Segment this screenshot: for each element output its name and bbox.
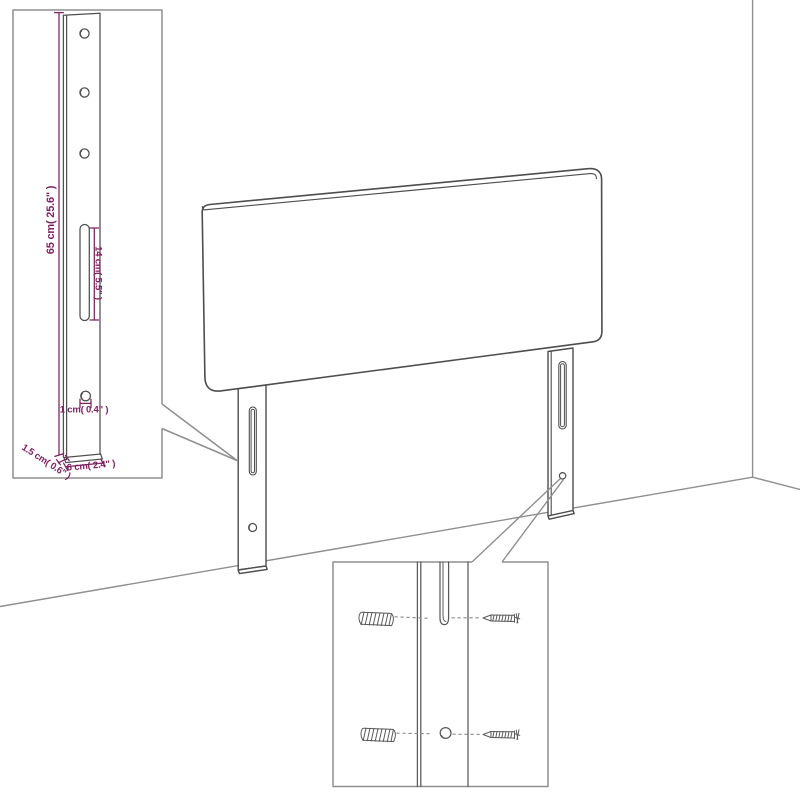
floor-line-left [0, 477, 753, 606]
leg-hole-bottom-shade [81, 393, 82, 398]
leg-left-edge [63, 15, 66, 459]
assembly-diagram: 65 cm( 25.6" ) 14 cm( 5.5" ) 1 cm( 0.4" … [0, 0, 800, 800]
dimension-label-leg-height: 65 cm( 25.6" ) [45, 186, 57, 254]
callout-line-upper [162, 404, 237, 461]
right-leg [548, 348, 574, 519]
wall-plug-bottom-icon [361, 728, 396, 742]
left-leg [238, 385, 267, 574]
leg-hole-bottom [81, 391, 91, 401]
callout-line-lower [162, 429, 237, 461]
dimension-label-slot-length: 14 cm( 5.5" ) [93, 246, 104, 300]
headboard [202, 169, 602, 391]
screw-top-icon [483, 613, 520, 623]
callout-line-right [502, 480, 563, 562]
leg-slot [80, 225, 89, 321]
leg-detail-view [63, 13, 102, 462]
leg-top-edge [63, 13, 100, 15]
callout-line-left [472, 479, 560, 562]
leg-hole-lower [80, 149, 89, 158]
screw-bottom-icon [483, 730, 520, 740]
diagram-linework [0, 0, 800, 800]
leg-hole-top-shade [80, 31, 81, 36]
wall-plug-top-icon [359, 612, 394, 626]
left-leg-body [238, 385, 266, 570]
leg-hole-lower-shade [80, 151, 81, 156]
leg-closeup [417, 562, 468, 787]
floor-line-right [753, 477, 800, 489]
leg-hole-middle-shade [80, 90, 81, 95]
leg-closeup-slot-inner [443, 562, 446, 621]
dimension-label-hole-diameter: 1 cm( 0.4" ) [60, 405, 109, 416]
leg-closeup-left-edge [417, 562, 420, 787]
leg-hole-middle [80, 88, 89, 97]
headboard-panel [202, 169, 602, 391]
leg-closeup-slot [440, 562, 449, 625]
hardware-inset [333, 562, 548, 787]
leg-hole-top [80, 29, 89, 38]
